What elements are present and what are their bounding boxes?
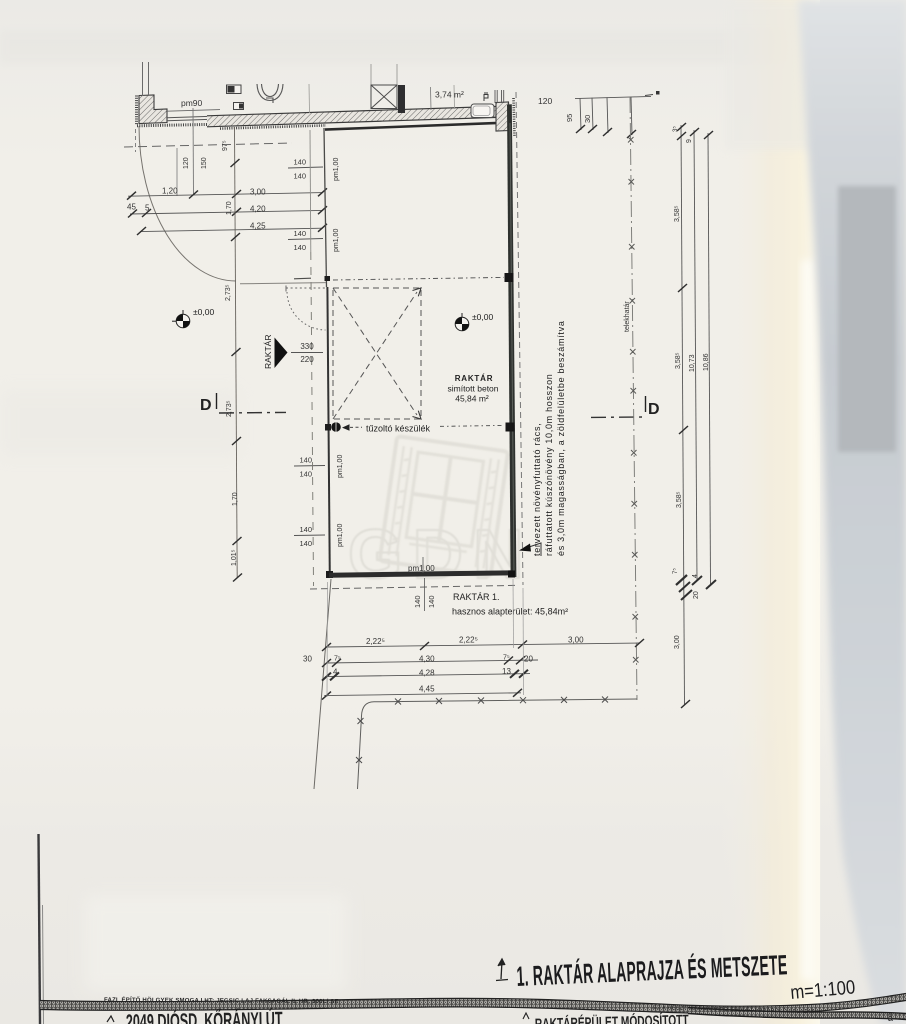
svg-text:2,73⁵: 2,73⁵ bbox=[226, 400, 233, 417]
svg-text:hasznos alapterület: 45,84m²: hasznos alapterület: 45,84m² bbox=[452, 607, 568, 617]
svg-text:tervezett növényfuttató rács,: tervezett növényfuttató rács, bbox=[532, 423, 542, 556]
svg-text:30: 30 bbox=[583, 115, 592, 123]
svg-text:7⁵: 7⁵ bbox=[672, 568, 679, 574]
svg-text:140: 140 bbox=[293, 243, 306, 252]
svg-text:RAKTÁR: RAKTÁR bbox=[263, 335, 273, 369]
svg-text:1,20: 1,20 bbox=[162, 187, 178, 196]
svg-text:±0,00: ±0,00 bbox=[193, 307, 214, 317]
svg-text:2,22⁵: 2,22⁵ bbox=[366, 637, 385, 646]
svg-text:RAKTÁR 1.: RAKTÁR 1. bbox=[453, 592, 500, 602]
svg-text:9: 9 bbox=[686, 139, 693, 143]
svg-text:140: 140 bbox=[293, 158, 306, 167]
svg-text:140: 140 bbox=[413, 595, 422, 608]
svg-text:30: 30 bbox=[303, 655, 312, 664]
svg-text:1,01⁵: 1,01⁵ bbox=[231, 549, 238, 566]
svg-text:10,86: 10,86 bbox=[703, 353, 710, 371]
svg-text:ráfuttatott kúszónövény 10,0m: ráfuttatott kúszónövény 10,0m hosszon bbox=[544, 374, 554, 557]
svg-text:3,58⁵: 3,58⁵ bbox=[675, 352, 682, 369]
svg-text:120: 120 bbox=[183, 157, 190, 169]
svg-text:4: 4 bbox=[333, 668, 338, 677]
svg-text:13: 13 bbox=[502, 667, 511, 676]
svg-text:pm1,00: pm1,00 bbox=[408, 564, 435, 573]
svg-text:45: 45 bbox=[127, 203, 136, 212]
svg-text:±0,00: ±0,00 bbox=[472, 312, 493, 322]
svg-text:140: 140 bbox=[299, 456, 312, 465]
svg-text:5: 5 bbox=[145, 204, 150, 213]
svg-text:220: 220 bbox=[300, 355, 314, 364]
svg-text:3⁵: 3⁵ bbox=[672, 126, 679, 132]
svg-text:2049 DIÓSD, KŐRÁNYI ÚT: 2049 DIÓSD, KŐRÁNYI ÚT bbox=[126, 1007, 283, 1024]
svg-text:pm1,00: pm1,00 bbox=[333, 158, 340, 181]
svg-text:140: 140 bbox=[293, 172, 306, 181]
svg-text:3,58⁵: 3,58⁵ bbox=[676, 491, 683, 508]
svg-text:RAKTÁR: RAKTÁR bbox=[455, 374, 494, 383]
svg-text:telekhatár: telekhatár bbox=[624, 301, 631, 332]
svg-text:10,73: 10,73 bbox=[689, 354, 696, 372]
svg-text:150: 150 bbox=[201, 157, 208, 169]
svg-text:45,84 m²: 45,84 m² bbox=[455, 394, 489, 404]
svg-text:2,73⁵: 2,73⁵ bbox=[225, 284, 232, 301]
svg-text:pm90: pm90 bbox=[181, 98, 203, 108]
svg-text:4,30: 4,30 bbox=[419, 655, 435, 664]
svg-text:1,70: 1,70 bbox=[232, 492, 239, 506]
svg-text:pm1,00: pm1,00 bbox=[333, 229, 340, 252]
svg-text:7⁵: 7⁵ bbox=[503, 655, 510, 662]
svg-text:simított beton: simított beton bbox=[447, 384, 498, 394]
svg-text:tűzoltó készülék: tűzoltó készülék bbox=[366, 424, 431, 434]
svg-text:95: 95 bbox=[565, 114, 574, 122]
svg-text:140: 140 bbox=[299, 470, 312, 479]
svg-text:3,00: 3,00 bbox=[674, 635, 681, 649]
svg-text:3,00: 3,00 bbox=[568, 636, 584, 645]
svg-text:1,70: 1,70 bbox=[226, 201, 233, 215]
svg-text:D: D bbox=[648, 401, 660, 418]
svg-text:3,58⁵: 3,58⁵ bbox=[674, 205, 681, 222]
svg-text:4: 4 bbox=[692, 574, 699, 578]
svg-text:20: 20 bbox=[693, 591, 700, 599]
svg-text:pm1,00: pm1,00 bbox=[337, 455, 344, 478]
svg-text:és 3,0m magasságban, a zöldfel: és 3,0m magasságban, a zöldfelületbe bes… bbox=[556, 320, 566, 556]
svg-text:20: 20 bbox=[524, 655, 533, 664]
svg-text:97⁵: 97⁵ bbox=[222, 140, 229, 151]
svg-text:140: 140 bbox=[427, 595, 436, 608]
svg-text:3,74 m²: 3,74 m² bbox=[435, 90, 464, 100]
svg-text:330: 330 bbox=[300, 342, 314, 351]
svg-text:140: 140 bbox=[293, 229, 306, 238]
svg-text:4,45: 4,45 bbox=[419, 685, 435, 694]
svg-text:120: 120 bbox=[538, 96, 552, 106]
svg-text:pm1,00: pm1,00 bbox=[337, 524, 344, 547]
svg-text:4,28: 4,28 bbox=[419, 669, 435, 678]
svg-text:4,25: 4,25 bbox=[250, 222, 266, 231]
svg-text:2,22⁵: 2,22⁵ bbox=[459, 636, 478, 645]
svg-text:7⁵: 7⁵ bbox=[334, 656, 341, 663]
svg-text:D: D bbox=[200, 397, 212, 414]
svg-text:3,00: 3,00 bbox=[250, 188, 266, 197]
svg-text:140: 140 bbox=[299, 525, 312, 534]
svg-text:140: 140 bbox=[299, 539, 312, 548]
svg-text:4,20: 4,20 bbox=[250, 205, 266, 214]
